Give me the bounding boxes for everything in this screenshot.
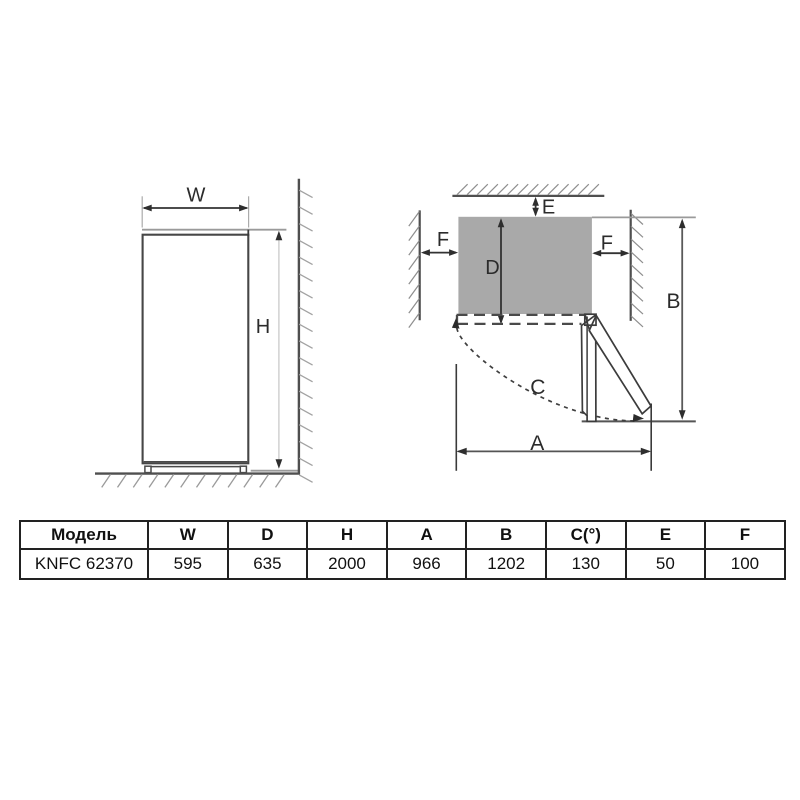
svg-text:A: A bbox=[530, 432, 544, 455]
svg-text:B: B bbox=[666, 290, 680, 313]
svg-text:F: F bbox=[601, 232, 613, 254]
svg-text:E: E bbox=[542, 197, 555, 219]
svg-text:W: W bbox=[187, 185, 206, 207]
svg-text:C: C bbox=[530, 376, 545, 399]
svg-text:F: F bbox=[437, 229, 449, 251]
svg-text:H: H bbox=[256, 316, 270, 338]
svg-text:D: D bbox=[485, 257, 499, 279]
